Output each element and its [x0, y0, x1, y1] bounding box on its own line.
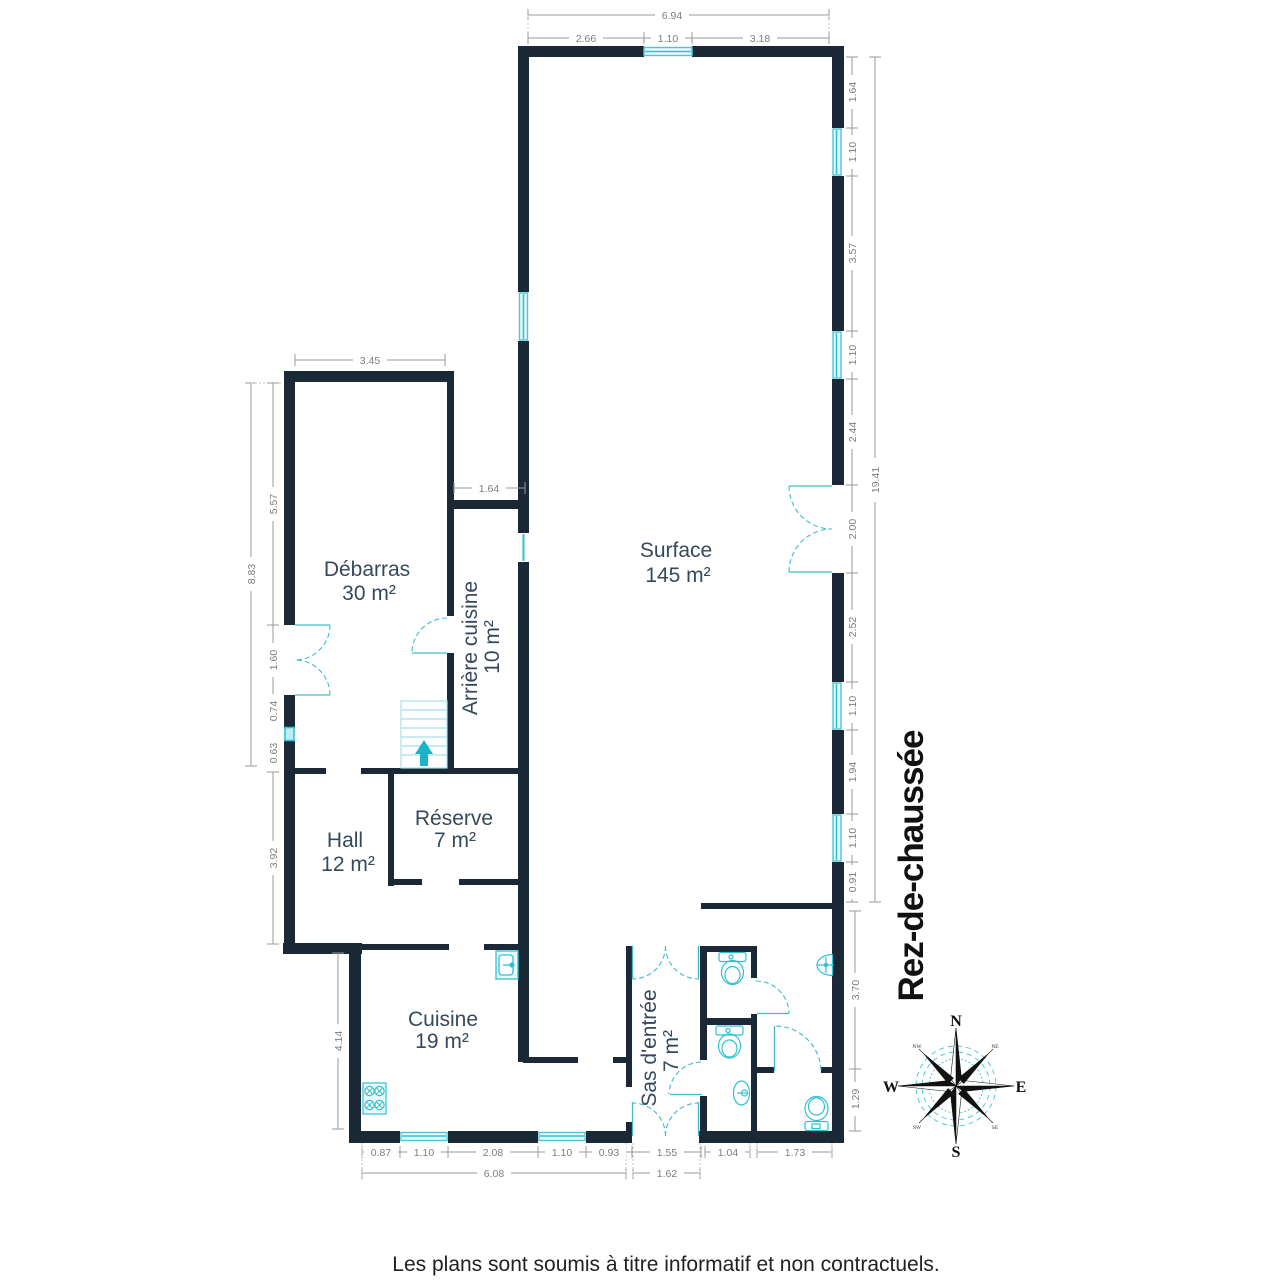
- svg-text:Rez-de-chaussée: Rez-de-chaussée: [892, 730, 931, 1001]
- svg-text:3.70: 3.70: [850, 980, 862, 1001]
- svg-text:0.63: 0.63: [268, 743, 280, 764]
- svg-text:1.10: 1.10: [658, 33, 679, 45]
- svg-text:1.73: 1.73: [785, 1147, 806, 1159]
- svg-text:0.74: 0.74: [268, 701, 280, 722]
- svg-text:0.87: 0.87: [371, 1147, 392, 1159]
- svg-text:W: W: [883, 1079, 899, 1096]
- svg-text:1.94: 1.94: [847, 762, 859, 783]
- svg-text:1.60: 1.60: [268, 650, 280, 671]
- svg-text:2.52: 2.52: [847, 617, 859, 638]
- svg-text:NW: NW: [912, 1044, 922, 1050]
- svg-text:2.44: 2.44: [847, 422, 859, 443]
- svg-text:145 m²: 145 m²: [645, 564, 710, 587]
- svg-text:Les plans sont soumis à titre: Les plans sont soumis à titre informatif…: [392, 1253, 939, 1276]
- svg-text:Débarras: Débarras: [324, 558, 410, 581]
- svg-text:3.92: 3.92: [268, 848, 280, 869]
- svg-text:1.04: 1.04: [718, 1147, 739, 1159]
- svg-text:0.93: 0.93: [599, 1147, 620, 1159]
- svg-text:19 m²: 19 m²: [415, 1030, 469, 1053]
- svg-text:NE: NE: [991, 1044, 999, 1050]
- svg-text:1.10: 1.10: [847, 828, 859, 849]
- svg-text:1.29: 1.29: [850, 1089, 862, 1110]
- svg-text:2.08: 2.08: [483, 1147, 504, 1159]
- svg-text:12 m²: 12 m²: [321, 853, 375, 876]
- svg-text:N: N: [950, 1013, 962, 1030]
- svg-text:6.08: 6.08: [484, 1168, 505, 1180]
- svg-text:7 m²: 7 m²: [434, 829, 476, 852]
- svg-text:S: S: [952, 1144, 961, 1161]
- svg-text:1.10: 1.10: [847, 142, 859, 163]
- svg-text:1.64: 1.64: [847, 82, 859, 103]
- svg-text:Réserve: Réserve: [415, 807, 493, 830]
- svg-text:5.57: 5.57: [268, 494, 280, 515]
- svg-text:8.83: 8.83: [246, 564, 258, 585]
- svg-text:1.10: 1.10: [847, 345, 859, 366]
- svg-text:3.45: 3.45: [360, 355, 381, 367]
- svg-text:Arrière cuisine: Arrière cuisine: [459, 581, 482, 715]
- svg-text:1.10: 1.10: [414, 1147, 435, 1159]
- svg-text:30 m²: 30 m²: [342, 582, 396, 605]
- svg-text:1.64: 1.64: [479, 483, 500, 495]
- svg-text:Cuisine: Cuisine: [408, 1008, 478, 1031]
- svg-text:Sas d'entrée: Sas d'entrée: [638, 989, 661, 1106]
- svg-text:3.57: 3.57: [847, 243, 859, 264]
- svg-text:1.10: 1.10: [847, 696, 859, 717]
- svg-text:1.62: 1.62: [657, 1168, 678, 1180]
- svg-text:SE: SE: [992, 1125, 999, 1131]
- svg-text:1.55: 1.55: [657, 1147, 678, 1159]
- svg-text:1.10: 1.10: [552, 1147, 573, 1159]
- svg-text:4.14: 4.14: [333, 1031, 345, 1052]
- svg-text:E: E: [1016, 1079, 1027, 1096]
- svg-text:0.91: 0.91: [847, 872, 859, 893]
- svg-text:SW: SW: [913, 1125, 922, 1131]
- svg-text:3.18: 3.18: [750, 33, 771, 45]
- svg-text:7 m²: 7 m²: [660, 1030, 683, 1072]
- svg-text:6.94: 6.94: [662, 10, 683, 22]
- svg-text:Surface: Surface: [640, 539, 712, 562]
- svg-text:Hall: Hall: [327, 829, 363, 852]
- svg-text:10 m²: 10 m²: [481, 620, 504, 674]
- svg-text:2.00: 2.00: [847, 519, 859, 540]
- svg-text:2.66: 2.66: [576, 33, 597, 45]
- svg-text:19.41: 19.41: [870, 467, 882, 493]
